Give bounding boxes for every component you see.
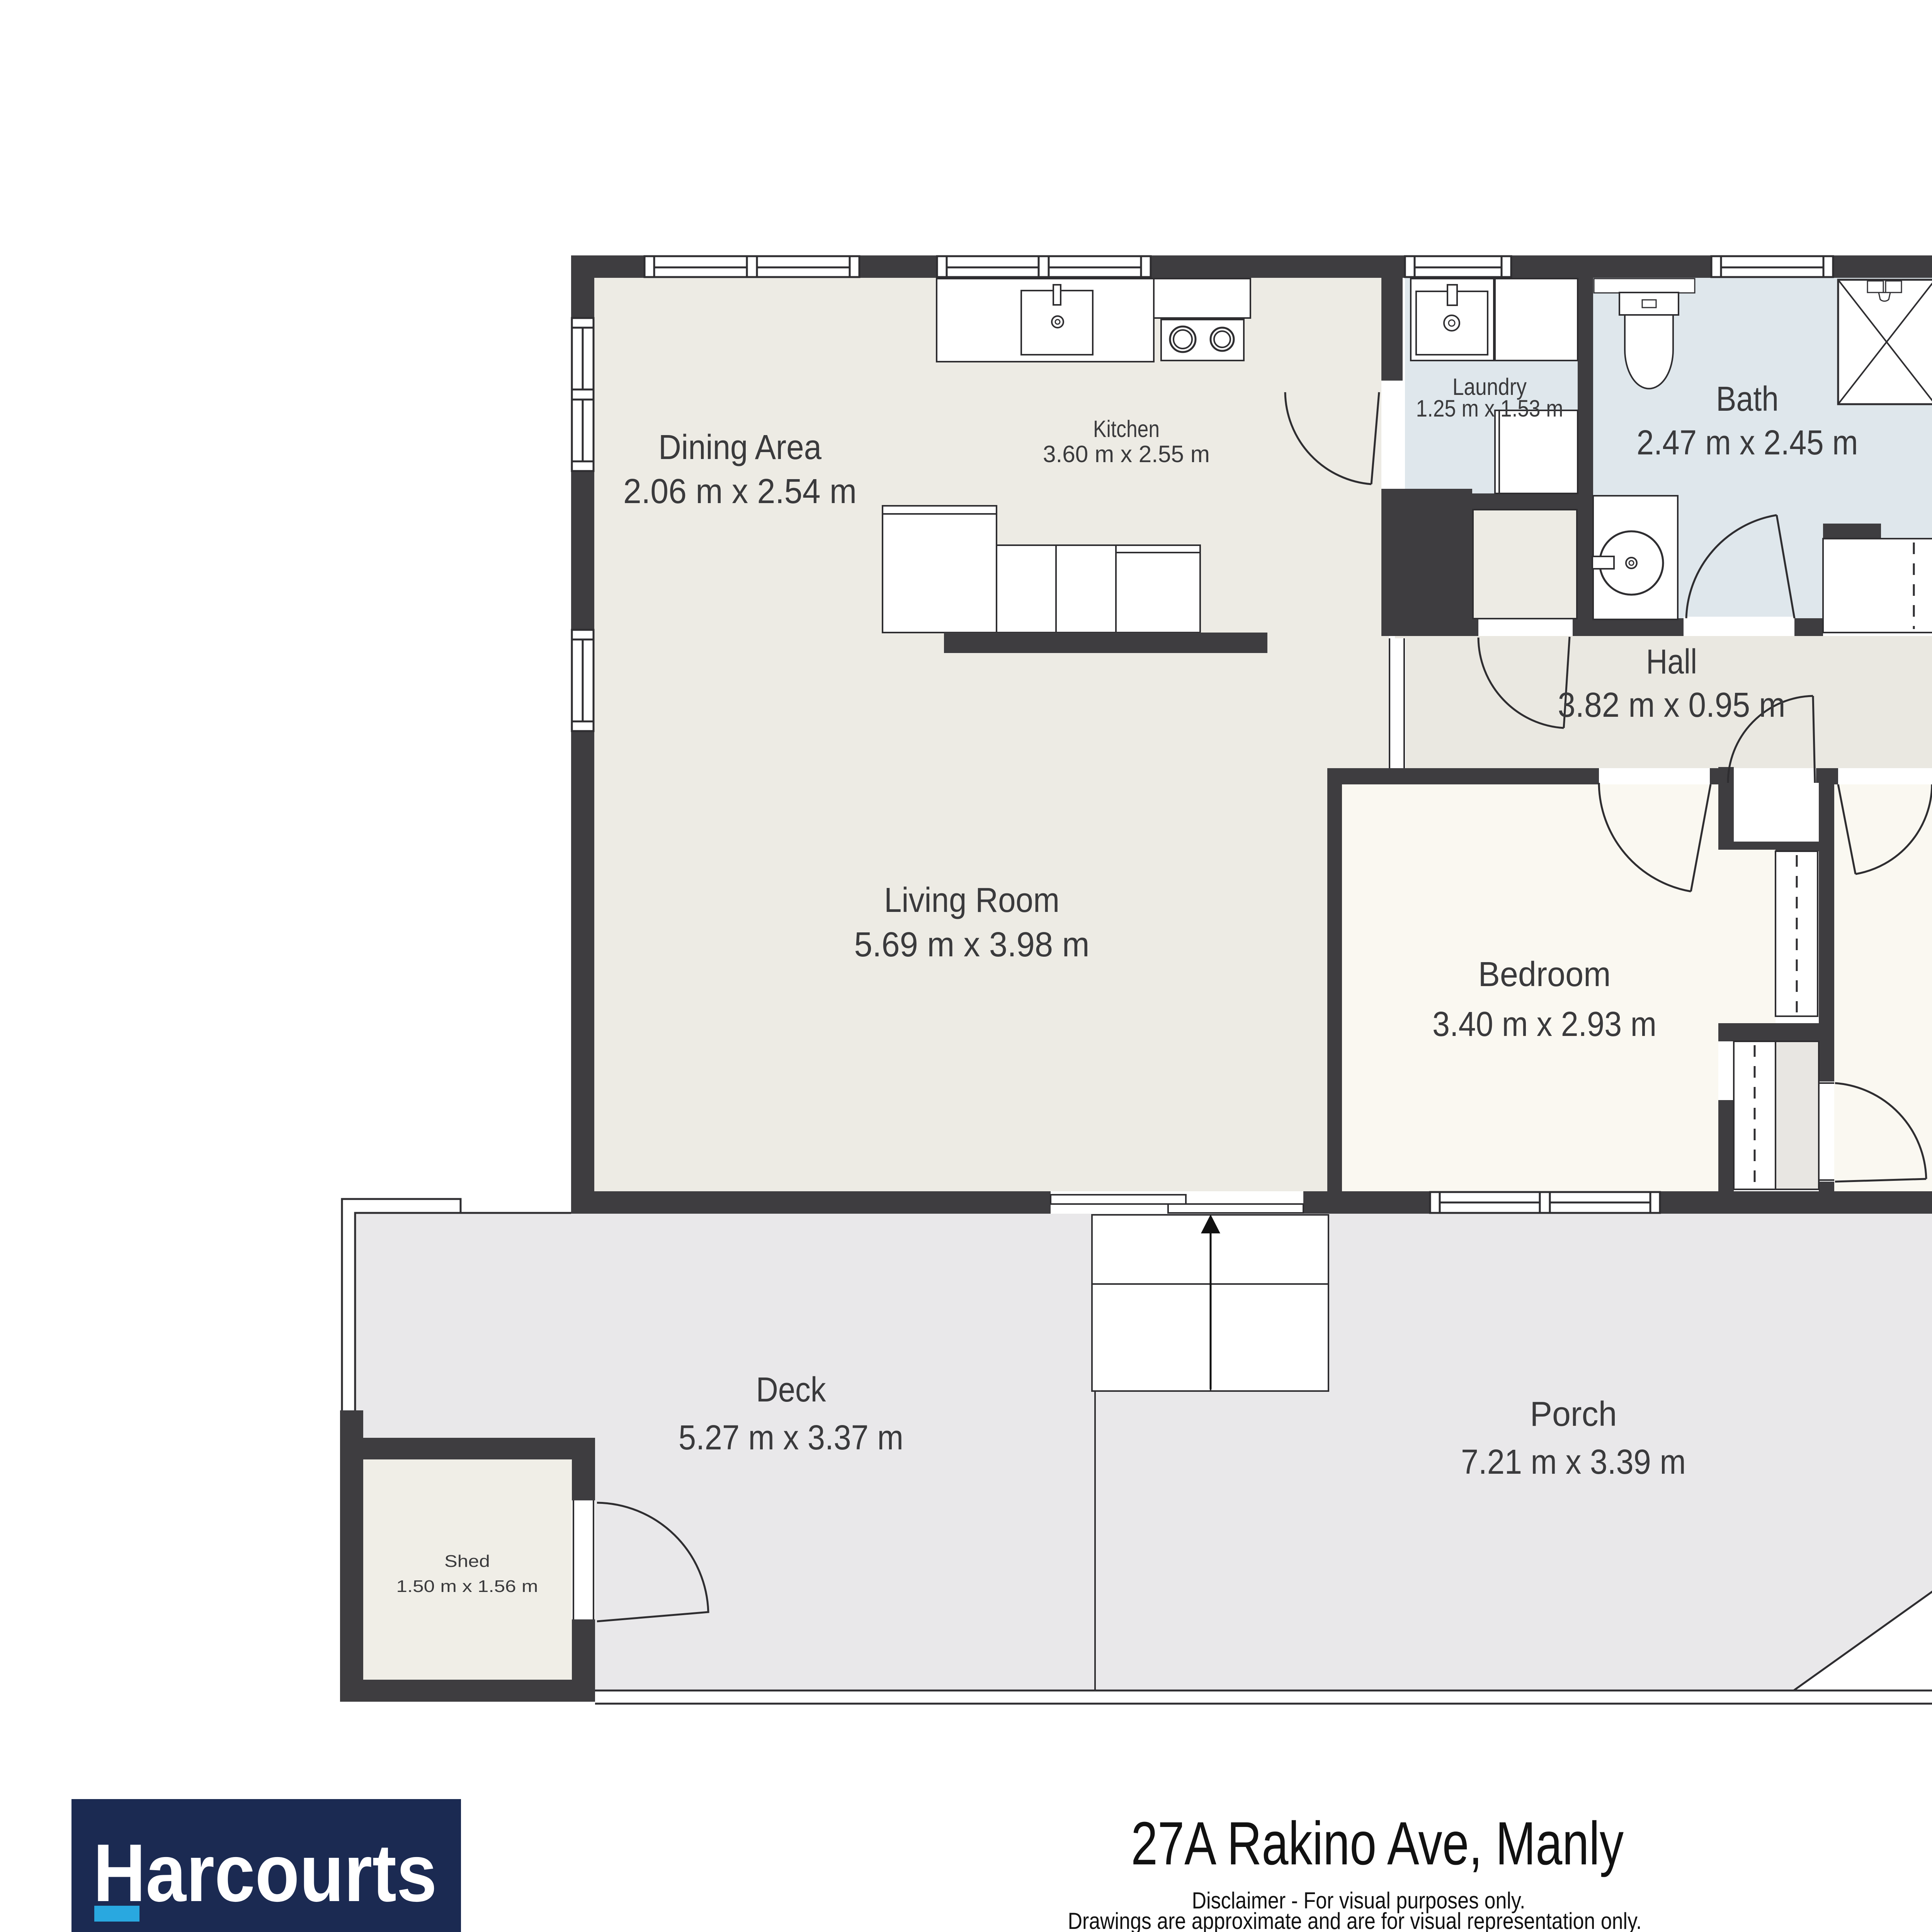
svg-text:Drawings are approximate and a: Drawings are approximate and are for vis… <box>1068 1908 1642 1932</box>
svg-text:1.25 m x 1.53 m: 1.25 m x 1.53 m <box>1416 395 1563 422</box>
svg-text:Deck: Deck <box>756 1371 827 1409</box>
svg-text:Dining Area: Dining Area <box>658 428 822 467</box>
svg-text:27A Rakino Ave, Manly: 27A Rakino Ave, Manly <box>1131 1810 1624 1878</box>
svg-text:3.82 m x 0.95 m: 3.82 m x 0.95 m <box>1558 686 1786 724</box>
svg-text:3.60 m x 2.55 m: 3.60 m x 2.55 m <box>1043 441 1210 467</box>
svg-text:Shed: Shed <box>444 1552 490 1571</box>
svg-text:Bath: Bath <box>1716 380 1779 418</box>
svg-text:2.47 m x 2.45 m: 2.47 m x 2.45 m <box>1637 423 1858 462</box>
svg-text:Hall: Hall <box>1646 643 1697 681</box>
svg-text:1.50 m x 1.56 m: 1.50 m x 1.56 m <box>396 1577 538 1596</box>
svg-text:2.06 m x 2.54 m: 2.06 m x 2.54 m <box>623 472 857 511</box>
svg-text:5.27 m x 3.37 m: 5.27 m x 3.37 m <box>679 1418 903 1457</box>
svg-text:Porch: Porch <box>1530 1395 1617 1434</box>
svg-text:3.40 m x 2.93 m: 3.40 m x 2.93 m <box>1432 1005 1656 1044</box>
svg-text:Kitchen: Kitchen <box>1093 416 1160 442</box>
svg-text:7.21 m x 3.39 m: 7.21 m x 3.39 m <box>1461 1443 1686 1481</box>
svg-text:We measure internal spaces whi: We measure internal spaces which exclude… <box>675 1929 1932 1932</box>
svg-text:5.69 m x 3.98 m: 5.69 m x 3.98 m <box>854 925 1090 964</box>
svg-text:Harcourts: Harcourts <box>93 1827 437 1918</box>
svg-text:Bedroom: Bedroom <box>1478 955 1611 994</box>
svg-text:Living Room: Living Room <box>884 881 1060 920</box>
